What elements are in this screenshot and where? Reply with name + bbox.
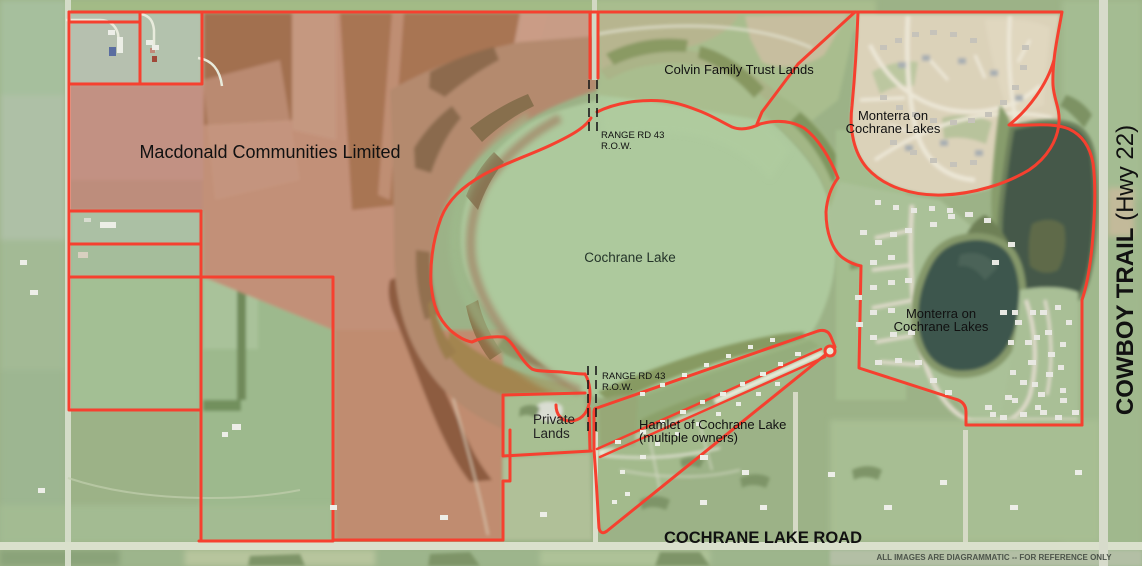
svg-text:Cochrane Lakes: Cochrane Lakes: [894, 319, 989, 334]
svg-text:RANGE RD 43: RANGE RD 43: [602, 371, 665, 382]
svg-text:Private: Private: [533, 412, 575, 427]
svg-text:COWBOY TRAIL (Hwy 22): COWBOY TRAIL (Hwy 22): [1112, 125, 1139, 415]
svg-text:(multiple owners): (multiple owners): [639, 430, 738, 445]
svg-text:R.O.W.: R.O.W.: [602, 382, 633, 393]
svg-text:Cochrane Lakes: Cochrane Lakes: [846, 121, 941, 136]
svg-text:R.O.W.: R.O.W.: [601, 141, 632, 152]
svg-text:Macdonald Communities Limited: Macdonald Communities Limited: [139, 142, 400, 162]
svg-text:ALL IMAGES ARE DIAGRAMMATIC --: ALL IMAGES ARE DIAGRAMMATIC -- FOR REFER…: [876, 553, 1112, 562]
svg-text:Colvin Family Trust Lands: Colvin Family Trust Lands: [664, 62, 814, 77]
svg-text:COCHRANE LAKE ROAD: COCHRANE LAKE ROAD: [664, 529, 862, 547]
svg-text:Lands: Lands: [533, 426, 570, 441]
svg-text:Cochrane Lake: Cochrane Lake: [584, 250, 676, 265]
svg-text:RANGE RD 43: RANGE RD 43: [601, 130, 664, 141]
